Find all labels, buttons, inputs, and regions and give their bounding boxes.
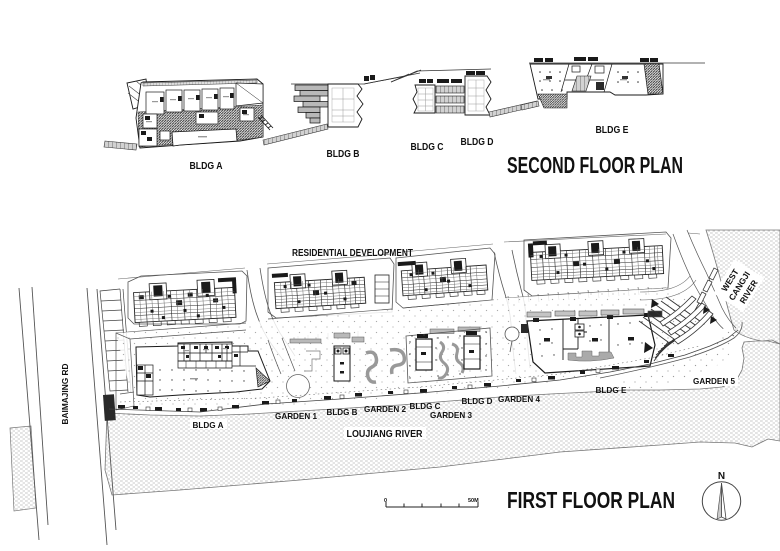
svg-text:BLDG D: BLDG D <box>461 137 494 148</box>
svg-text:RESIDENTIAL DEVELOPMENT: RESIDENTIAL DEVELOPMENT <box>292 247 413 259</box>
svg-text:GARDEN 5: GARDEN 5 <box>693 376 735 386</box>
svg-text:GARDEN 1: GARDEN 1 <box>275 411 317 421</box>
svg-text:N: N <box>718 471 725 482</box>
svg-text:BLDG E: BLDG E <box>596 385 627 395</box>
svg-text:BLDG B: BLDG B <box>327 149 360 160</box>
svg-text:FIRST FLOOR PLAN: FIRST FLOOR PLAN <box>507 487 675 513</box>
svg-text:BLDG E: BLDG E <box>596 125 629 136</box>
svg-text:0: 0 <box>384 498 387 504</box>
svg-text:GARDEN 3: GARDEN 3 <box>430 410 472 420</box>
svg-text:BLDG C: BLDG C <box>411 142 444 153</box>
svg-text:LOUJIANG RIVER: LOUJIANG RIVER <box>347 429 424 440</box>
svg-text:GARDEN 4: GARDEN 4 <box>498 394 540 404</box>
svg-text:BLDG B: BLDG B <box>327 407 358 417</box>
svg-text:50M: 50M <box>468 498 479 504</box>
svg-text:SECOND FLOOR PLAN: SECOND FLOOR PLAN <box>507 152 683 178</box>
svg-text:GARDEN 2: GARDEN 2 <box>364 404 406 414</box>
svg-text:BLDG A: BLDG A <box>190 161 223 172</box>
svg-text:BAIMAJING RD: BAIMAJING RD <box>60 364 70 425</box>
svg-text:BLDG D: BLDG D <box>462 396 493 406</box>
svg-text:BLDG A: BLDG A <box>193 420 224 430</box>
